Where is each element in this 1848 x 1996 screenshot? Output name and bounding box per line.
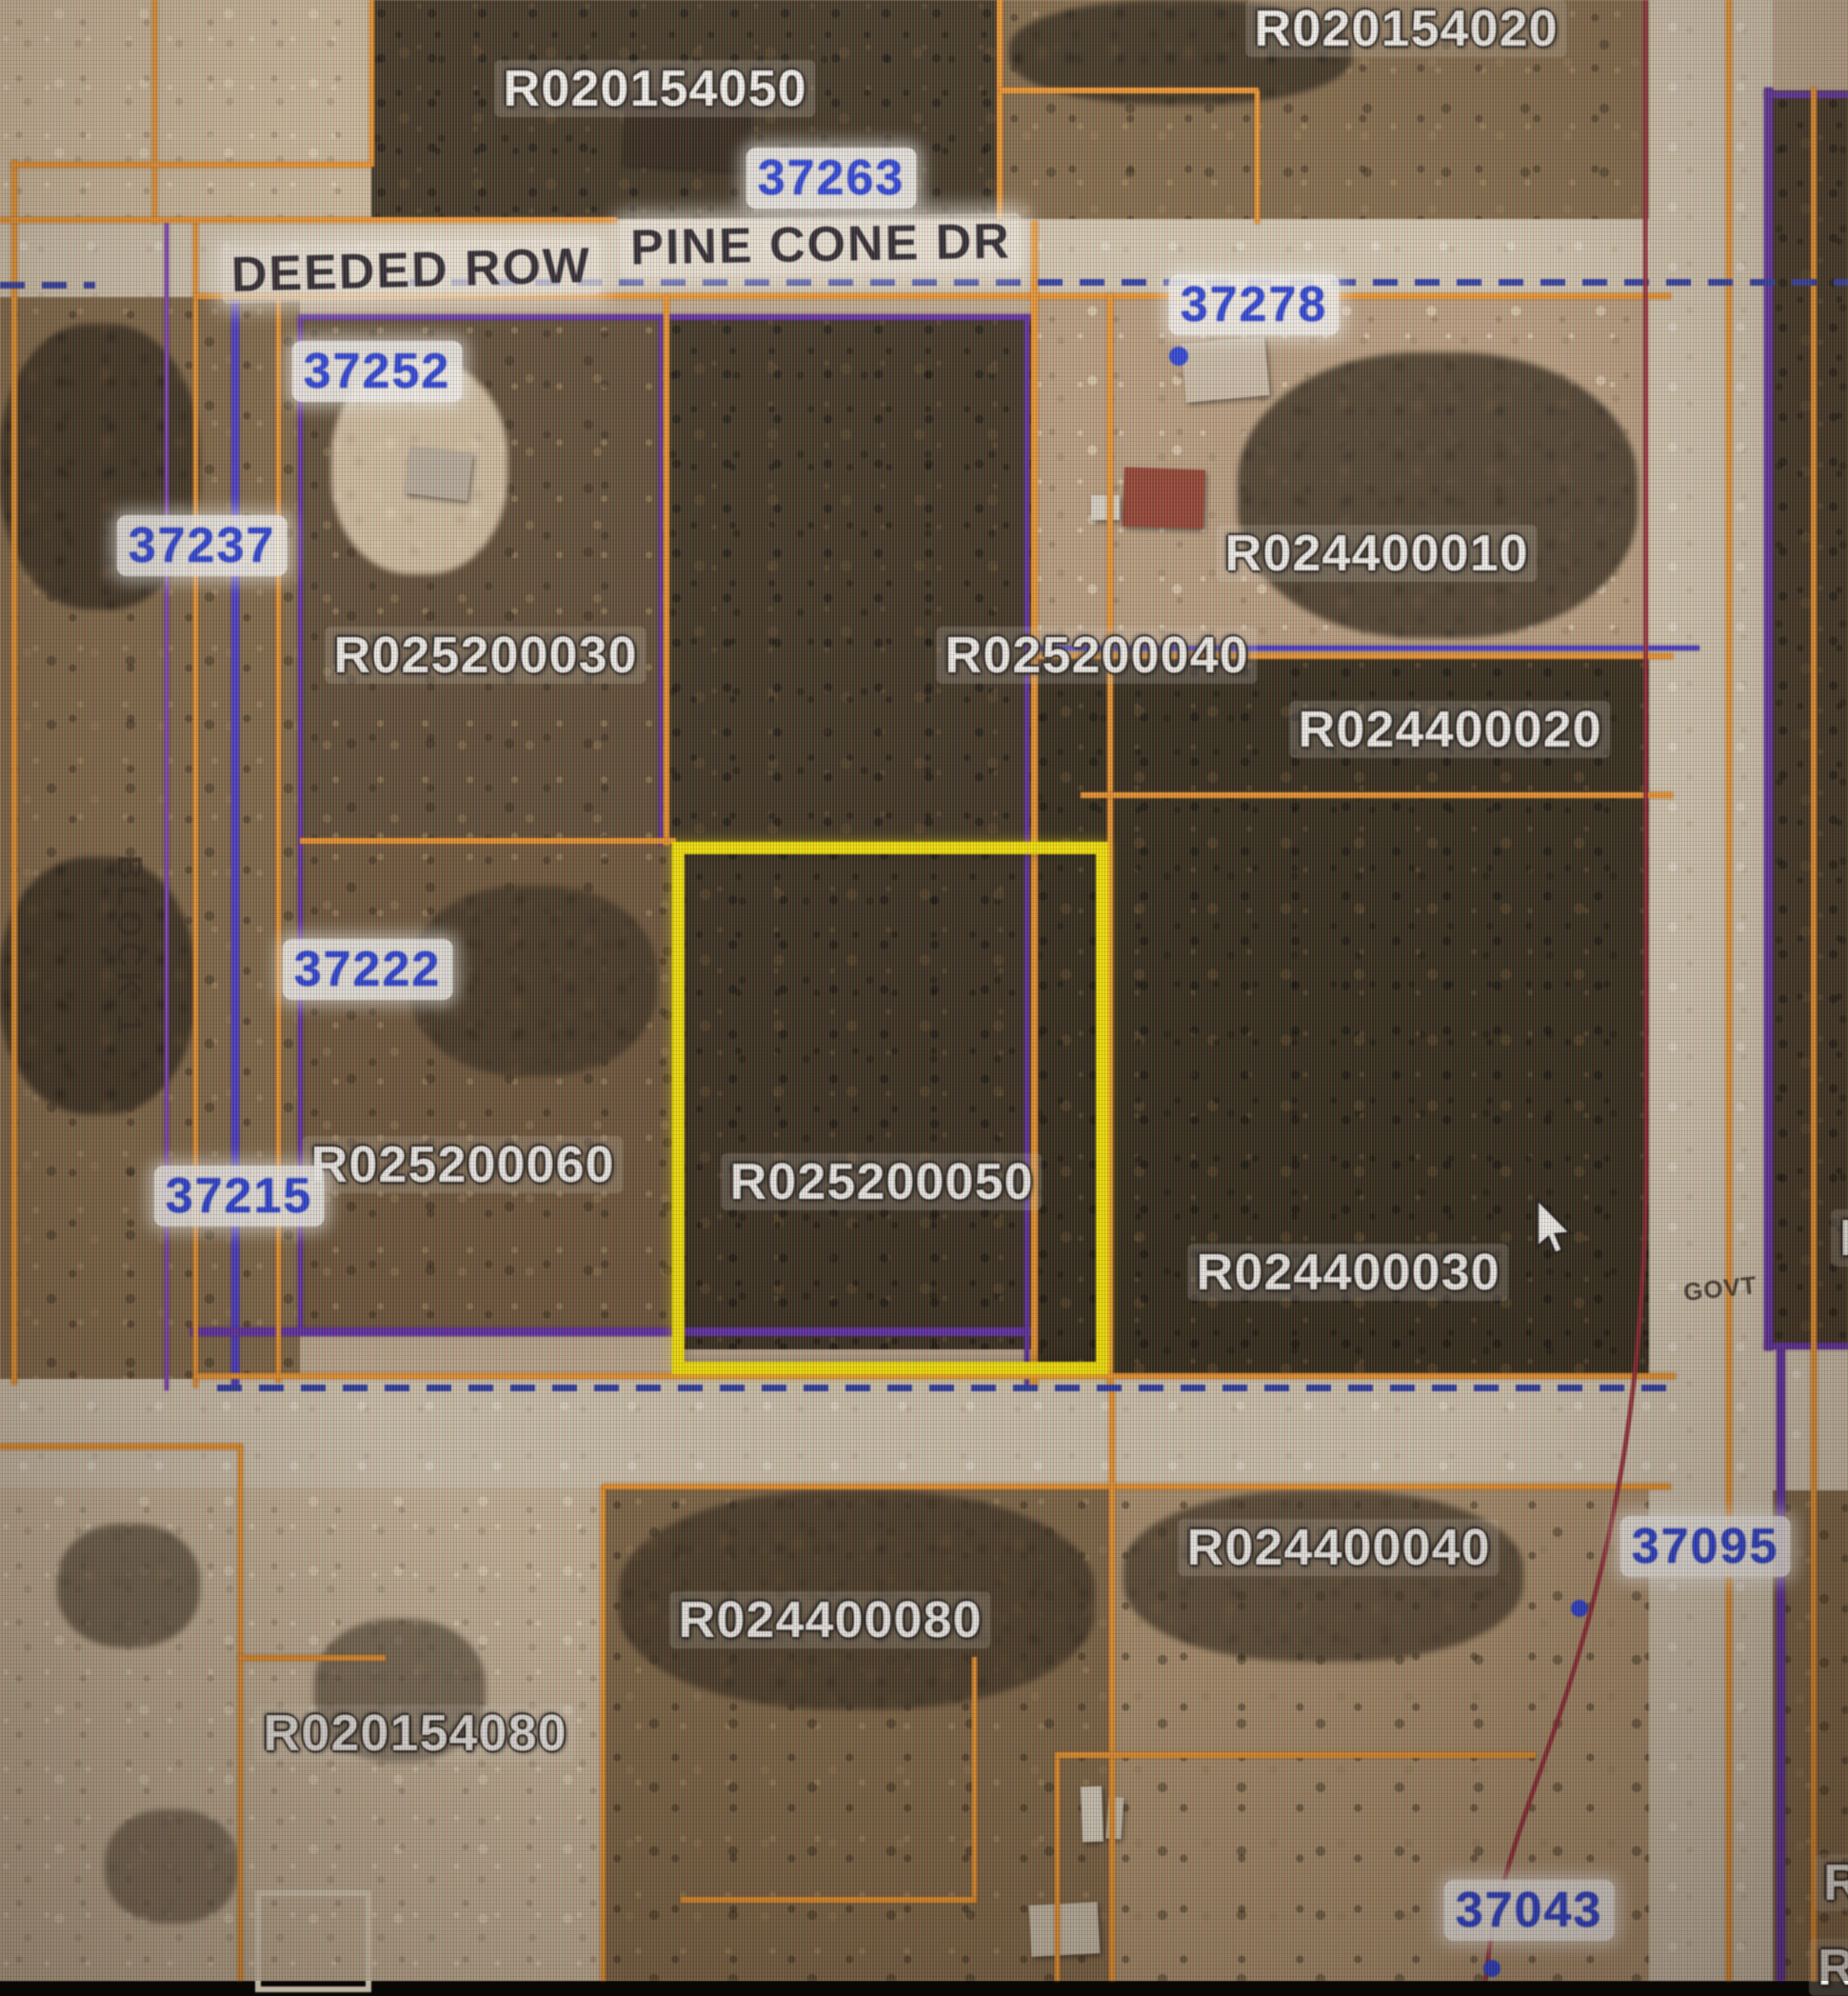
- address-label: 37043: [1444, 1880, 1615, 1941]
- selected-parcel-highlight[interactable]: [672, 842, 1108, 1374]
- parcel-label[interactable]: R024400080: [669, 1591, 990, 1648]
- address-point: [1483, 1960, 1500, 1977]
- address-point: [1169, 347, 1188, 366]
- mouse-cursor: [1535, 1198, 1577, 1262]
- street-label-deeded-row: DEEDED ROW: [221, 237, 602, 304]
- parcel-label[interactable]: R020154080: [254, 1705, 575, 1762]
- parcel-label[interactable]: R025200060: [302, 1136, 623, 1193]
- parcel-label[interactable]: R024400010: [1216, 525, 1537, 582]
- gis-map-canvas[interactable]: R020154050 R020154020 R024400010 R025200…: [0, 0, 1848, 1981]
- parcel-label-partial[interactable]: R: [1809, 1939, 1848, 1996]
- address-label: 37215: [154, 1166, 325, 1227]
- parcel-label-partial[interactable]: R: [1815, 1854, 1848, 1911]
- street-label-pine-cone-dr: PINE CONE DR: [621, 212, 1022, 276]
- parcel-label[interactable]: R020154020: [1245, 0, 1566, 57]
- parcel-label-partial[interactable]: R: [1831, 1209, 1848, 1267]
- address-label: 37252: [292, 341, 463, 402]
- aerial-photo-layer: R020154050 R020154020 R024400010 R025200…: [0, 0, 1848, 1981]
- parcel-label[interactable]: R024400030: [1187, 1244, 1508, 1301]
- address-label: 37237: [117, 515, 288, 576]
- parcel-label[interactable]: R024400020: [1289, 701, 1610, 758]
- block-label: BLOCK 1: [112, 855, 147, 1039]
- address-label: 37263: [746, 148, 917, 209]
- address-label: 37278: [1169, 274, 1340, 335]
- address-label: 37095: [1620, 1516, 1791, 1577]
- govt-lot-label: GOVT: [1682, 1272, 1759, 1305]
- address-point: [1571, 1600, 1588, 1617]
- parcel-label[interactable]: R020154050: [494, 60, 815, 117]
- parcel-label-selected[interactable]: R025200050: [721, 1153, 1042, 1210]
- parcel-label[interactable]: R025200030: [325, 627, 646, 684]
- address-label: 37222: [283, 939, 453, 1000]
- parcel-label[interactable]: R025200040: [936, 627, 1257, 684]
- parcel-label[interactable]: R024400040: [1178, 1519, 1499, 1576]
